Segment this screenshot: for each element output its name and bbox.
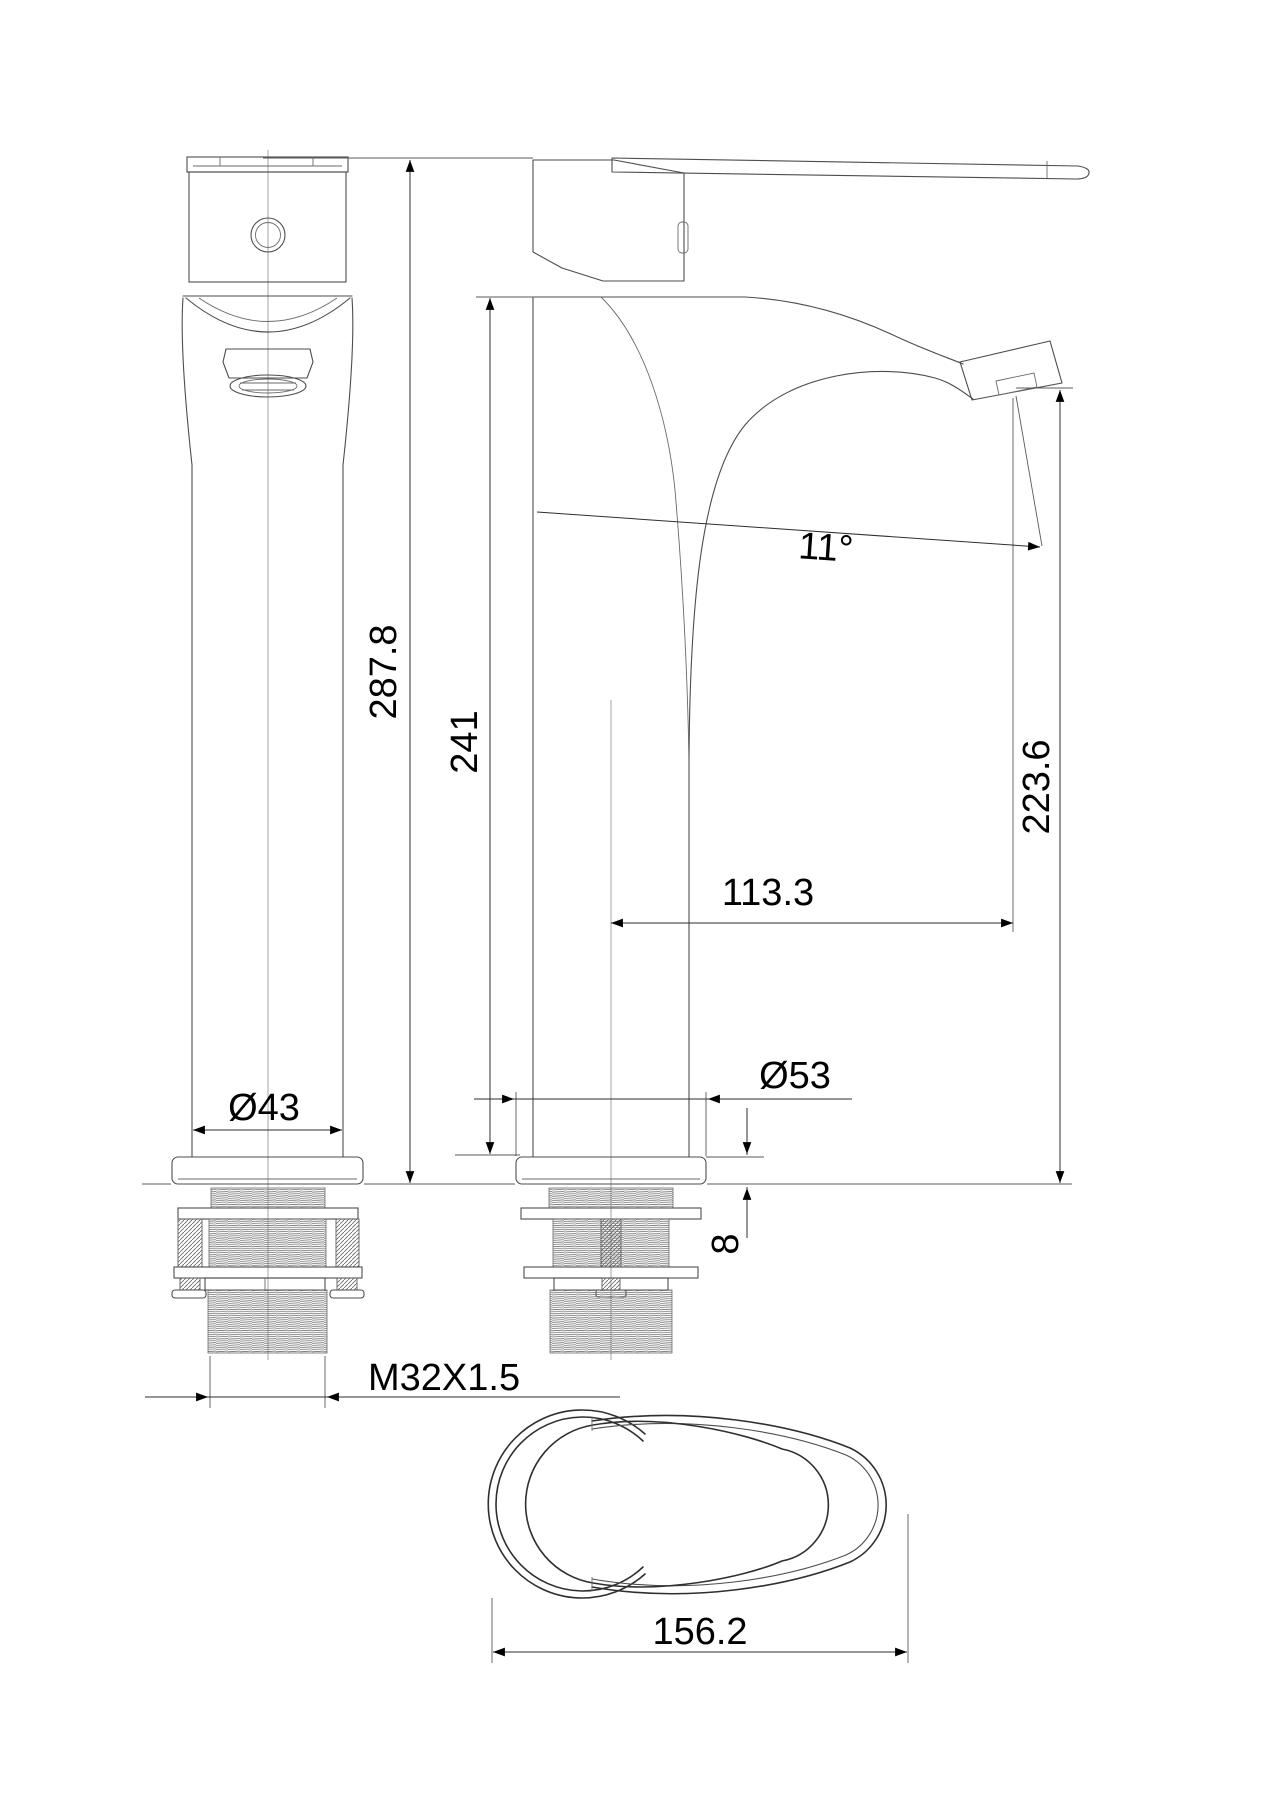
handle-lever-teardrop: [526, 1421, 829, 1587]
spout-outlet: [960, 341, 1062, 400]
front-handle-cap: [187, 157, 348, 282]
mounting-stud-left: [178, 1219, 202, 1267]
handle-base-inner-circle: [496, 1417, 643, 1591]
dim-flange-thickness-label: 8: [705, 1233, 747, 1254]
dim-spout-height-label: 223.6: [1016, 739, 1058, 834]
dim-body-height-label: 241: [444, 710, 486, 773]
spout-aerator: [996, 373, 1037, 395]
dimension-thread-spec: M32X1.5: [145, 1356, 620, 1408]
dimension-body-height: 241: [444, 297, 534, 1155]
faucet-technical-drawing-page: 287.8 241 223.6 113.3 11° Ø43 Ø53: [0, 0, 1272, 1800]
dimension-spout-reach: 113.3: [611, 398, 1013, 932]
side-view: [516, 158, 1089, 1360]
dimension-flange-thickness: 8: [705, 1108, 764, 1255]
dim-handle-length-label: 156.2: [652, 1611, 747, 1653]
dimension-handle-length: 156.2: [492, 1514, 908, 1663]
dimension-base-diameter: Ø53: [474, 1055, 852, 1156]
handle-lever-inner-line: [592, 1423, 878, 1585]
side-handle-lever: [533, 158, 1089, 281]
side-body-spout: [533, 297, 1062, 1157]
dim-body-diameter-label: Ø43: [228, 1087, 300, 1129]
dim-total-height-label: 287.8: [363, 624, 405, 719]
dimension-spout-angle: 11°: [537, 396, 1042, 571]
side-handle-cap: [533, 160, 684, 281]
inlet-thread-tail: [208, 1290, 327, 1353]
dim-spout-reach-label: 113.3: [722, 872, 814, 914]
mounting-stud-right: [336, 1219, 359, 1267]
dimension-body-diameter: Ø43: [193, 1087, 342, 1130]
front-body-column: [182, 298, 353, 1157]
dim-base-diameter-label: Ø53: [759, 1055, 831, 1097]
front-view: [172, 150, 364, 1360]
faucet-technical-drawing: 287.8 241 223.6 113.3 11° Ø43 Ø53: [0, 0, 1272, 1800]
handle-base-outer-circle: [488, 1410, 645, 1598]
dim-spout-angle-label: 11°: [797, 525, 854, 571]
handle-cap-clip: [678, 222, 688, 253]
dimension-total-height: 287.8: [142, 158, 533, 1184]
handle-lever-outline: [592, 1416, 886, 1594]
dim-thread-spec-label: M32X1.5: [368, 1357, 520, 1399]
front-spout-arch: [183, 296, 352, 397]
mounting-stud-center: [601, 1219, 621, 1267]
handle-top-view: [488, 1410, 886, 1598]
